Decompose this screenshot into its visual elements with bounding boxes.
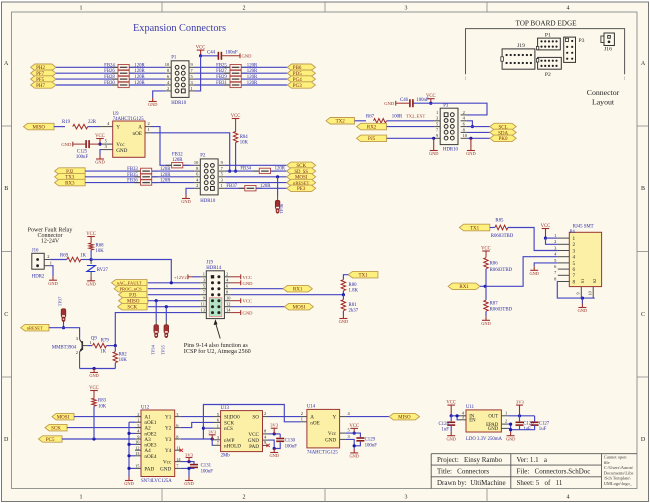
svg-text:1: 1	[50, 260, 52, 265]
svg-text:C125: C125	[77, 150, 88, 155]
svg-text:B: B	[4, 186, 8, 192]
svg-text:12-24V: 12-24V	[41, 238, 60, 244]
svg-text:MISO: MISO	[33, 126, 46, 131]
svg-text:P1: P1	[545, 33, 551, 39]
svg-text:nOE: nOE	[132, 131, 142, 137]
svg-text:2: 2	[76, 350, 78, 355]
svg-text:MISO: MISO	[398, 416, 411, 421]
svg-text:120R: 120R	[172, 158, 183, 163]
svg-text:PJ5: PJ5	[368, 137, 376, 142]
svg-text:R69: R69	[60, 253, 69, 258]
svg-text:GND: GND	[86, 281, 96, 286]
svg-text:VCC: VCC	[248, 432, 259, 438]
svg-text:FB28: FB28	[104, 75, 115, 80]
svg-text:C128: C128	[438, 422, 449, 427]
svg-text:SCK: SCK	[127, 306, 137, 311]
svg-text:TX2: TX2	[336, 120, 346, 125]
svg-text:10K: 10K	[98, 405, 107, 410]
svg-text:R82: R82	[119, 352, 128, 357]
svg-text:S1: S1	[580, 279, 585, 283]
svg-text:R0603TBD: R0603TBD	[490, 268, 513, 273]
svg-text:C127: C127	[539, 422, 550, 427]
svg-text:RX2: RX2	[367, 126, 377, 131]
svg-text:1: 1	[137, 418, 139, 423]
svg-text:Cannot open: Cannot open	[604, 455, 628, 460]
svg-text:B: B	[641, 186, 645, 192]
svg-text:PG3: PG3	[293, 84, 302, 89]
svg-text:R68: R68	[96, 243, 105, 248]
svg-text:D: D	[4, 437, 9, 443]
svg-text:2: 2	[463, 110, 465, 115]
svg-text:MMBT3904: MMBT3904	[52, 346, 77, 351]
svg-text:GND: GND	[325, 437, 336, 443]
svg-text:GND: GND	[61, 142, 72, 147]
svg-text:2: 2	[505, 419, 507, 424]
svg-text:SN74LVC125A: SN74LVC125A	[141, 479, 172, 484]
svg-text:GND: GND	[349, 454, 359, 459]
svg-text:A: A	[138, 125, 142, 131]
svg-text:2: 2	[148, 121, 150, 126]
svg-text:U11: U11	[466, 405, 475, 410]
svg-text:FB26: FB26	[104, 69, 115, 74]
svg-text:GND: GND	[148, 102, 158, 107]
svg-text:6: 6	[573, 267, 576, 273]
svg-text:2: 2	[226, 272, 228, 277]
svg-text:Ver: 1.1 a: Ver: 1.1 a	[517, 456, 548, 464]
svg-text:Title: Connectors: Title: Connectors	[437, 468, 489, 476]
svg-text:A: A	[641, 61, 646, 67]
svg-text:R19: R19	[62, 120, 71, 125]
svg-text:HDR2: HDR2	[32, 275, 45, 280]
svg-text:74AHCT1G125: 74AHCT1G125	[113, 117, 145, 122]
svg-text:VCC: VCC	[243, 299, 252, 304]
svg-text:1: 1	[203, 272, 205, 277]
svg-text:12: 12	[226, 302, 230, 307]
svg-text:C44: C44	[207, 50, 216, 55]
svg-text:12: 12	[135, 446, 139, 451]
svg-text:GND: GND	[181, 199, 191, 204]
svg-text:Q9: Q9	[91, 337, 97, 342]
svg-text:SCK: SCK	[51, 427, 61, 432]
svg-text:2: 2	[167, 86, 169, 91]
svg-text:GND: GND	[488, 427, 499, 432]
svg-text:Drawn by: UltiMachine: Drawn by: UltiMachine	[437, 479, 506, 487]
svg-text:RX3: RX3	[65, 182, 75, 187]
svg-text:100nF: 100nF	[285, 445, 298, 450]
svg-text:GND: GND	[243, 311, 254, 316]
svg-text:UMLogo\logo_: UMLogo\logo_	[604, 481, 633, 486]
svg-text:GND: GND	[429, 151, 439, 156]
svg-text:PROC_nCS: PROC_nCS	[119, 287, 142, 292]
svg-text:GND: GND	[529, 271, 539, 276]
svg-text:EN: EN	[469, 419, 476, 424]
svg-text:OUT: OUT	[488, 414, 498, 419]
svg-text:1: 1	[217, 424, 219, 429]
svg-text:FB24: FB24	[104, 63, 115, 68]
svg-text:3: 3	[573, 248, 576, 254]
svg-text:FB37: FB37	[226, 184, 237, 189]
svg-text:10: 10	[588, 291, 593, 295]
svg-text:R86: R86	[490, 262, 499, 267]
svg-text:GND: GND	[124, 481, 134, 486]
svg-text:C130: C130	[285, 438, 296, 443]
svg-text:GND: GND	[269, 453, 279, 458]
svg-text:1: 1	[436, 110, 438, 115]
svg-text:C129: C129	[365, 437, 376, 442]
svg-text:Layout: Layout	[592, 98, 615, 107]
svg-text:2: 2	[243, 6, 246, 12]
svg-text:Vcc: Vcc	[328, 431, 337, 437]
svg-text:TP37: TP37	[58, 296, 63, 306]
svg-text:FB35: FB35	[127, 173, 138, 178]
svg-text:5: 5	[573, 261, 576, 267]
svg-text:GND: GND	[339, 319, 349, 324]
svg-text:P3: P3	[443, 103, 449, 108]
svg-text:P4: P4	[570, 230, 576, 235]
svg-text:File: Connectors.SchDoc: File: Connectors.SchDoc	[517, 468, 591, 476]
svg-text:HDR10: HDR10	[443, 148, 459, 153]
svg-text:100nF: 100nF	[225, 50, 238, 55]
svg-text:GND: GND	[89, 373, 99, 378]
svg-text:+12V2: +12V2	[174, 275, 188, 280]
svg-text:100nF: 100nF	[201, 469, 214, 474]
svg-text:RJ45 SMT: RJ45 SMT	[573, 225, 594, 230]
svg-text:GND: GND	[160, 466, 171, 472]
svg-text:HDR10: HDR10	[171, 101, 187, 106]
svg-text:FB31: FB31	[216, 81, 227, 86]
svg-text:1: 1	[191, 86, 193, 91]
svg-text:1: 1	[80, 495, 83, 501]
svg-text:10K: 10K	[96, 249, 105, 254]
svg-text:1: 1	[148, 127, 150, 132]
svg-text:R87: R87	[490, 302, 499, 307]
svg-text:J19: J19	[206, 260, 213, 265]
svg-text:FB34: FB34	[240, 167, 251, 172]
svg-text:1K: 1K	[80, 253, 86, 258]
svg-text:1: 1	[554, 233, 556, 238]
svg-text:J19: J19	[517, 43, 525, 49]
svg-text:PAD: PAD	[144, 466, 154, 472]
svg-text:3V3: 3V3	[270, 423, 279, 428]
svg-text:2: 2	[137, 412, 139, 417]
svg-text:S2: S2	[592, 279, 597, 283]
svg-text:11: 11	[201, 302, 205, 307]
svg-text:Y: Y	[332, 415, 336, 421]
svg-text:Expansion Connectors: Expansion Connectors	[133, 23, 226, 34]
svg-text:nOE: nOE	[310, 420, 320, 426]
svg-text:PC5: PC5	[46, 438, 55, 443]
svg-text:C131: C131	[201, 463, 212, 468]
svg-text:GND: GND	[243, 281, 254, 286]
svg-text:R85: R85	[495, 219, 504, 224]
svg-text:2: 2	[554, 239, 556, 244]
svg-text:Vcc: Vcc	[163, 460, 172, 466]
svg-text:C: C	[641, 312, 645, 318]
svg-text:VCC: VCC	[243, 275, 252, 280]
svg-text:3: 3	[405, 6, 408, 12]
svg-text:Y4: Y4	[165, 448, 172, 454]
svg-text:J16: J16	[32, 249, 39, 254]
svg-text:2: 2	[243, 495, 246, 501]
svg-text:R79: R79	[101, 338, 110, 343]
svg-text:SO: SO	[252, 415, 259, 421]
svg-text:1: 1	[505, 410, 507, 415]
svg-text:FB36: FB36	[127, 179, 138, 184]
svg-text:TP34: TP34	[150, 344, 155, 354]
svg-text:LDO 3.3V 250mA: LDO 3.3V 250mA	[466, 437, 503, 442]
svg-text:74AHCT1G125: 74AHCT1G125	[307, 451, 339, 456]
svg-text:TX1: TX1	[470, 226, 480, 231]
svg-text:TP36: TP36	[279, 203, 284, 213]
svg-text:1: 1	[221, 183, 223, 188]
svg-text:TX1: TX1	[359, 274, 369, 279]
svg-text:2: 2	[573, 242, 576, 248]
svg-text:Connector: Connector	[587, 88, 620, 97]
svg-text:11: 11	[176, 446, 180, 451]
svg-text:100R: 100R	[392, 114, 403, 119]
svg-text:nOE4: nOE4	[144, 454, 157, 460]
svg-text:2: 2	[264, 411, 266, 416]
svg-text:GND: GND	[184, 481, 194, 486]
svg-text:3V3: 3V3	[185, 452, 194, 457]
svg-text:10K: 10K	[240, 140, 249, 145]
svg-text:C46: C46	[400, 98, 409, 103]
svg-text:R84: R84	[240, 135, 249, 140]
svg-text:Project: Einsy Rambo: Project: Einsy Rambo	[437, 456, 502, 464]
svg-text:100nF: 100nF	[416, 98, 429, 103]
svg-text:P2: P2	[545, 72, 551, 78]
svg-text:1: 1	[573, 236, 576, 242]
svg-text:U12: U12	[141, 405, 150, 410]
svg-text:2k37: 2k37	[349, 309, 359, 314]
svg-text:GND: GND	[466, 151, 476, 156]
svg-text:HDR10: HDR10	[200, 199, 216, 204]
svg-text:FB25: FB25	[216, 63, 227, 68]
svg-text:GND: GND	[48, 281, 58, 286]
svg-text:4: 4	[567, 495, 570, 501]
svg-text:GND: GND	[506, 436, 516, 441]
svg-text:C:\Users\Aaron\: C:\Users\Aaron\	[604, 465, 634, 470]
svg-text:MOSI: MOSI	[57, 416, 70, 421]
svg-text:R80: R80	[349, 283, 358, 288]
svg-text:FB30: FB30	[104, 81, 115, 86]
svg-text:P2: P2	[200, 154, 206, 159]
svg-text:9: 9	[576, 292, 581, 294]
svg-text:nCS: nCS	[224, 426, 233, 432]
svg-text:PH7: PH7	[36, 84, 45, 89]
svg-text:1: 1	[301, 416, 303, 421]
svg-text:1K: 1K	[100, 349, 106, 354]
svg-text:HDR14: HDR14	[206, 266, 222, 271]
svg-text:ICSP for U2, Atmega 2560: ICSP for U2, Atmega 2560	[184, 348, 251, 355]
svg-text:GND: GND	[384, 101, 395, 106]
svg-text:10K: 10K	[119, 358, 128, 363]
svg-text:Y1: Y1	[165, 415, 172, 421]
svg-text:GND: GND	[95, 160, 105, 165]
svg-text:3: 3	[405, 495, 408, 501]
svg-text:MOSI: MOSI	[293, 306, 306, 311]
svg-text:R0603TBD: R0603TBD	[490, 308, 513, 313]
svg-text:R83: R83	[98, 399, 107, 404]
svg-text:D: D	[641, 437, 646, 443]
svg-text:RV27: RV27	[97, 268, 109, 273]
svg-text:Y: Y	[116, 125, 120, 131]
svg-text:R67: R67	[366, 114, 375, 119]
svg-text:FB33: FB33	[127, 167, 138, 172]
svg-text:1uF: 1uF	[539, 427, 547, 432]
svg-text:U13: U13	[221, 406, 230, 411]
svg-text:P3: P3	[579, 38, 585, 44]
svg-text:TP35: TP35	[161, 344, 166, 354]
svg-text:GND: GND	[578, 308, 588, 313]
svg-text:FB27: FB27	[216, 69, 227, 74]
svg-text:7: 7	[573, 273, 576, 279]
svg-text:GND: GND	[242, 54, 253, 59]
svg-text:22R: 22R	[88, 120, 97, 125]
svg-text:1.8K: 1.8K	[349, 289, 359, 294]
svg-text:Y2: Y2	[165, 426, 172, 432]
svg-text:FB29: FB29	[216, 75, 227, 80]
svg-text:C: C	[4, 312, 8, 318]
svg-text:8: 8	[573, 279, 576, 285]
svg-text:2: 2	[196, 183, 198, 188]
svg-text:PE3: PE3	[297, 187, 306, 192]
svg-text:Y3: Y3	[165, 437, 172, 443]
svg-text:100nF: 100nF	[365, 443, 378, 448]
svg-text:2: 2	[47, 254, 49, 259]
svg-text:U14: U14	[307, 405, 316, 410]
svg-text:TOP BOARD EDGE: TOP BOARD EDGE	[515, 20, 577, 28]
svg-text:P1: P1	[171, 56, 177, 61]
svg-text:FB32: FB32	[172, 152, 183, 157]
svg-text:GND: GND	[446, 436, 456, 441]
svg-text:100nF: 100nF	[76, 155, 89, 160]
svg-text:Sheet: 5 of 11: Sheet: 5 of 11	[517, 479, 563, 487]
svg-text:4: 4	[567, 6, 570, 12]
svg-text:R0603TBD: R0603TBD	[491, 234, 514, 239]
svg-text:nHOLD: nHOLD	[224, 443, 241, 449]
svg-text:1: 1	[80, 6, 83, 12]
svg-text:A: A	[4, 61, 9, 67]
svg-text:PAD: PAD	[249, 444, 259, 450]
svg-text:GND: GND	[481, 321, 491, 326]
svg-text:\Sch Template\: \Sch Template\	[604, 476, 632, 481]
svg-text:3V3: 3V3	[516, 399, 525, 404]
svg-text:RX1: RX1	[293, 288, 303, 293]
svg-text:R81: R81	[349, 303, 358, 308]
svg-text:nRESET: nRESET	[27, 326, 43, 331]
svg-text:GND: GND	[116, 148, 127, 154]
svg-text:J16: J16	[604, 46, 612, 52]
svg-text:TX2_EXT: TX2_EXT	[406, 113, 425, 118]
svg-text:1uF: 1uF	[441, 428, 449, 433]
svg-text:PK0: PK0	[499, 137, 508, 142]
svg-text:3V3: 3V3	[208, 430, 217, 435]
svg-text:2Mb: 2Mb	[221, 453, 231, 458]
svg-text:RX1: RX1	[459, 285, 469, 290]
svg-text:4: 4	[573, 255, 576, 261]
